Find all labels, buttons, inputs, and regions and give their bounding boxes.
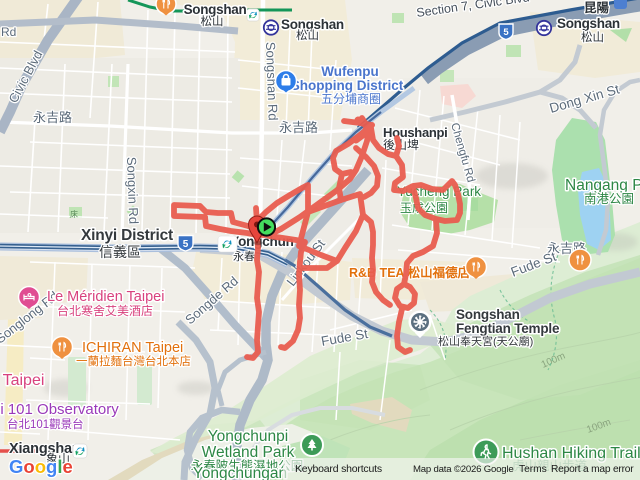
svg-text:五分埔商圈: 五分埔商圈 — [321, 91, 381, 106]
svg-text:ei 101 Observatory: ei 101 Observatory — [0, 401, 119, 418]
svg-text:Songshan: Songshan — [456, 307, 520, 322]
svg-text:一蘭拉麵台灣台北本店: 一蘭拉麵台灣台北本店 — [76, 354, 191, 368]
svg-text:台北寒舍艾美酒店: 台北寒舍艾美酒店 — [57, 303, 153, 318]
svg-text:Rd: Rd — [1, 25, 16, 39]
svg-text:R&B TEA 松山福德店: R&B TEA 松山福德店 — [349, 265, 471, 280]
svg-text:永吉路: 永吉路 — [33, 110, 72, 125]
svg-text:台北101觀景台: 台北101觀景台 — [7, 417, 84, 431]
svg-text:Keyboard shortcuts: Keyboard shortcuts — [295, 463, 382, 475]
svg-text:Songxin Rd: Songxin Rd — [124, 157, 141, 225]
svg-text:Map data ©2026 Google: Map data ©2026 Google — [413, 464, 513, 475]
svg-text:床: 床 — [70, 209, 78, 219]
svg-text:5: 5 — [503, 27, 509, 38]
svg-text:松山: 松山 — [296, 28, 319, 42]
svg-text:Yongchunpi: Yongchunpi — [208, 428, 288, 445]
svg-text:Fengtian Temple: Fengtian Temple — [456, 321, 560, 336]
svg-text:Songshan: Songshan — [184, 2, 247, 17]
svg-text:信義區: 信義區 — [99, 244, 141, 260]
svg-text:Wufenpu: Wufenpu — [321, 64, 379, 79]
svg-text:松山奉天宮(天公廟): 松山奉天宮(天公廟) — [438, 334, 533, 348]
svg-text:Songshan: Songshan — [557, 16, 620, 31]
svg-text:松山: 松山 — [201, 14, 224, 28]
svg-text:ICHIRAN Taipei: ICHIRAN Taipei — [82, 340, 183, 356]
svg-text:永吉路: 永吉路 — [279, 120, 318, 135]
svg-text:Report a map error: Report a map error — [551, 464, 634, 475]
svg-text:Xinyi District: Xinyi District — [81, 227, 173, 244]
svg-text:Yongchungan: Yongchungan — [193, 465, 287, 480]
svg-text:南港公園: 南港公園 — [584, 191, 634, 206]
svg-text:Terms: Terms — [519, 464, 547, 475]
svg-text:昆陽: 昆陽 — [584, 0, 610, 15]
svg-text:5: 5 — [183, 239, 189, 250]
svg-text:t Taipei: t Taipei — [0, 372, 44, 389]
svg-text:Google: Google — [9, 456, 73, 477]
svg-text:Shopping District: Shopping District — [291, 78, 404, 93]
svg-text:Le Méridien Taipei: Le Méridien Taipei — [47, 289, 164, 305]
svg-text:松山: 松山 — [581, 30, 604, 44]
